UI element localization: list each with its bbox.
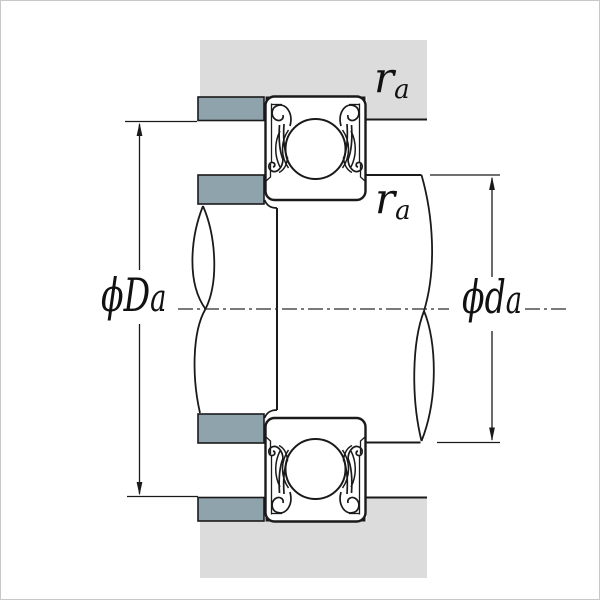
housing-shoulder-top [198, 97, 264, 121]
diagram-canvas: ϕDa ϕda ra ra [0, 0, 600, 600]
housing-shoulder-bottom [198, 498, 264, 522]
shaft-shoulder-top [198, 175, 264, 204]
label-Da: ϕDa [101, 270, 166, 323]
label-da: ϕda [462, 272, 522, 325]
bearing-mounting-diagram: ϕDa ϕda ra ra [0, 0, 600, 600]
shaft-shoulder-bottom [198, 414, 264, 443]
